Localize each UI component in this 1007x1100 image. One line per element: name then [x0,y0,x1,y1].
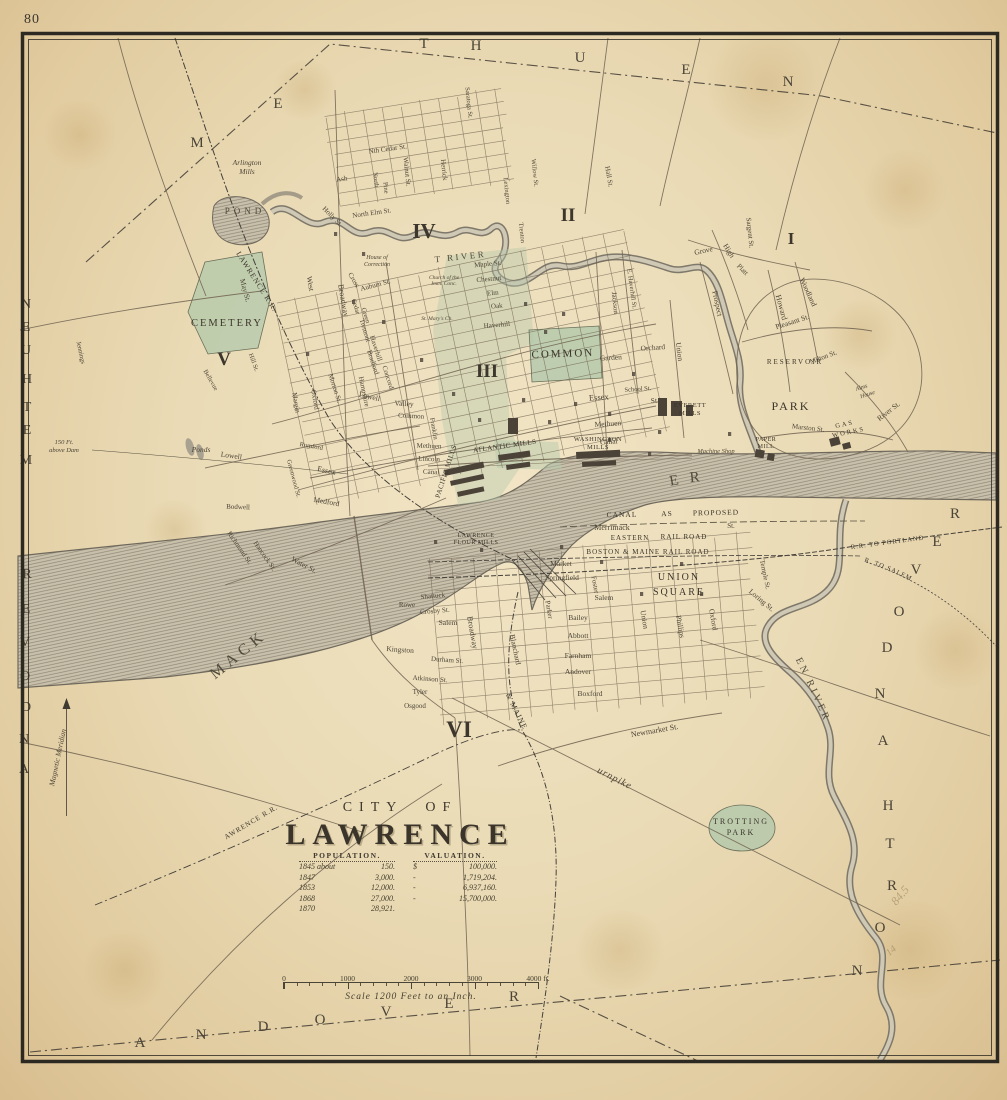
map-label: Hall St. [603,165,615,188]
map-label: Durham St. [431,655,464,665]
map-label: H [883,798,894,814]
map-label: Lincoln [418,455,441,464]
map-label: RAIL ROAD [661,533,708,541]
map-label: St. Mary's Ch. [421,316,452,322]
population-row-value: 12,000. [371,883,395,894]
map-label: PARK [772,399,811,413]
building-speck [658,430,661,434]
street-line [335,128,503,155]
population-row-label: 1853 [299,883,315,894]
valuation-row: -1,719,204. [413,873,497,884]
scale-minor-tick [386,983,387,986]
map-label: Milton St. [809,348,839,365]
valuation-row-value: 100,000. [469,862,497,873]
map-label: Rowe [399,601,415,609]
map-label: Willow St. [530,159,540,188]
scale-tick-label: 0 [282,974,286,983]
valuation-rows: $100,000.-1,719,204.-6,937,160.-15,700,0… [413,862,497,904]
map-label: N [875,686,886,702]
pond-outlet [262,193,302,204]
map-label: II [561,205,576,226]
scale-minor-tick [360,983,361,986]
map-label: Methuen [416,442,442,451]
building-speck [434,540,437,544]
scale-tick [475,983,476,989]
map-label: CANAL [606,510,637,520]
map-label: Boxford [578,689,603,698]
compass-arrowhead-icon [63,698,71,709]
map-label: Foster [590,575,601,594]
valuation-row-label: - [413,894,416,905]
map-label: Grove [693,244,714,257]
map-label: Blanchard [508,633,523,665]
population-row-value: 150. [381,862,395,873]
map-label: 150 Ft. [55,439,74,446]
map-label: N [196,1027,207,1043]
map-label: Platt [735,262,750,277]
population-row: 185312,000. [299,883,395,894]
population-row-value: 27,000. [371,894,395,905]
map-label: Ash [336,174,349,184]
map-label: Concord [380,365,395,391]
map-label: AS [661,509,673,518]
cemetery-area [188,252,270,354]
map-label: O [894,604,905,620]
map-label: D [882,640,893,656]
population-table: POPULATION. 1845 about150.18473,000.1853… [299,851,395,915]
map-label: Valley [394,399,414,409]
map-label: Tyler [413,688,428,696]
building-speck [480,548,483,552]
page-number: 80 [24,12,40,28]
street-line [337,153,508,180]
scale-minor-tick [424,983,425,986]
map-label: POND [225,206,266,216]
scale-tick [411,983,412,989]
building-speck [728,432,731,436]
street-line [325,89,502,117]
building-speck [524,302,527,306]
map-label: A [135,1035,146,1051]
population-row: 1845 about150. [299,862,395,873]
map-label: River St. [875,399,902,423]
scale-minor-tick [373,983,374,986]
pond [213,197,270,245]
map-label: MILLS [679,410,701,417]
valuation-row: -6,937,160. [413,883,497,894]
map-label: UNION [658,572,700,583]
map-label: West [305,275,317,292]
building-speck [648,452,651,456]
map-label: Ponds [191,445,211,454]
population-row: 186827,000. [299,894,395,905]
map-label: Machine Shop [696,448,735,455]
street-line [603,234,646,437]
map-label: Springfield [545,573,579,582]
map-label: Temple St. [758,559,772,590]
street-line [339,166,511,193]
population-header: POPULATION. [299,851,395,862]
building-speck [362,252,365,256]
map-label: Kingston [386,644,414,655]
scale-minor-tick [398,983,399,986]
map-label: PARK [727,828,756,837]
valuation-row: -15,700,000. [413,894,497,905]
map-label: above Dam [49,447,79,454]
population-row-label: 1868 [299,894,315,905]
map-label: Market [550,559,573,568]
population-row: 187028,921. [299,904,395,915]
scale-ruler: 01000200030004000 ft. [283,982,539,989]
map-label: Margin [290,392,302,414]
valuation-row-value: 15,700,000. [459,894,497,905]
building-speck [632,372,635,376]
valuation-row-value: 6,937,160. [463,883,497,894]
map-label: Union [638,610,650,630]
map-label: E [681,62,690,78]
street-line [326,101,504,129]
map-title-prefix: CITY OF [285,800,515,816]
map-label: Elm [487,288,500,297]
map-label-curved: LOWELL AND LAWRENCE R.R. [0,0,279,841]
map-label: FLOUR MILLS [454,540,499,546]
map-label: EVERETT [674,402,706,409]
map-label: Sargent St. [744,217,755,249]
map-label: PROPOSED [693,508,740,518]
map-label: IV [412,219,435,243]
map-label: V [381,1004,392,1020]
map-label: Farnham [565,651,592,660]
building-speck [608,412,611,416]
map-label: D [258,1019,269,1035]
map-label: Herrick [439,159,449,182]
map-label: COMMON [531,347,594,361]
map-label: School St. [624,385,652,394]
map-label: Oak [491,301,504,310]
map-label: Lexington [502,177,512,205]
map-label: Trenton [517,222,526,244]
scale-tick-label: 2000 [404,974,419,983]
map-label: Rumford [299,441,324,452]
map-label: North [371,172,380,189]
map-label: N [783,74,794,90]
map-label: Walnut St. [401,157,412,187]
scale-tick-label: 4000 ft. [526,974,549,983]
building-speck [640,592,643,596]
scale-tick [348,983,349,989]
population-row: 18473,000. [299,873,395,884]
map-label: E. Haverhill St. [625,268,638,309]
building-speck [306,352,309,356]
population-rows: 1845 about150.18473,000.185312,000.18682… [299,862,395,915]
map-label: Merrimack [594,523,630,532]
map-label: Phillips [674,614,687,638]
map-label: Lowell [220,450,242,462]
map-label: Abbott [568,631,590,640]
building-speck [560,545,563,549]
map-label: T [885,836,894,852]
valuation-row-label: - [413,873,416,884]
map-label: St. [650,396,659,406]
map-label: E [932,534,941,550]
building-speck [544,330,547,334]
map-label: O [875,920,886,936]
scale-minor-tick [513,983,514,986]
map-label: Mills [238,167,254,176]
map-label: Oxford [707,608,720,631]
scale-bar: 01000200030004000 ft. Scale 1200 Feet to… [283,972,539,1002]
map-label: EASTERN [611,534,650,542]
street-line [336,140,506,167]
map-label: Atkinson St. [412,674,448,684]
map-label: St. [727,522,735,530]
street-line [340,179,514,207]
building-speck [562,312,565,316]
map-label: TROTTING [713,817,769,826]
map-label: VI [446,717,472,742]
map-canvas: METHUENNEUHTEMREVODNAANDOVERREVODNAHTRON… [0,0,1007,1100]
map-label: E [273,96,282,112]
map-label: Church of the [429,274,460,281]
map-label: 14 [884,944,899,959]
valuation-header: VALUATION. [413,851,497,862]
map-label: V [911,562,922,578]
map-label: Bailey [568,613,588,622]
map-label: Salem [439,618,458,627]
valuation-row-label: $ [413,862,417,873]
map-label: Broadway [465,616,480,650]
map-label: Canal [600,436,618,446]
valuation-row: $100,000. [413,862,497,873]
scale-minor-tick [335,983,336,986]
map-label: Salem [595,593,614,602]
scale-tick [284,983,285,989]
building-speck [600,560,603,564]
street-line [327,114,506,142]
map-label: Marston St. [792,422,826,433]
street-line [439,656,761,684]
street-line [693,538,707,700]
map-label: CEMETERY [191,318,263,329]
map-label: PAPER [756,437,777,443]
map-label: O [315,1012,326,1028]
building-speck [382,320,385,324]
map-label: Arlington [232,158,262,167]
map-label: Medford [313,495,341,508]
map-label: Hill St. [247,352,260,372]
map-label: Magnetic Meridian [47,728,68,788]
map-label: Osgood [404,702,426,710]
map-label: Andover [565,667,592,676]
street-line [648,539,663,707]
map-label: Imm. Conc. [430,281,457,287]
valuation-row-value: 1,719,204. [463,873,497,884]
population-row-value: 28,921. [371,904,395,915]
map-title: LAWRENCE [285,818,515,852]
street-line [437,610,754,638]
map-label: Jennings [75,341,87,365]
map-label: Correction [364,262,390,268]
scale-minor-tick [436,983,437,986]
scale-minor-tick [297,983,298,986]
building-speck [680,562,683,566]
valuation-row-label: - [413,883,416,894]
building-speck [478,418,481,422]
scale-tick-label: 1000 [340,974,355,983]
scale-caption: Scale 1200 Feet to an Inch. [283,992,539,1002]
map-label: BOSTON & MAINE RAIL ROAD [586,548,709,556]
map-label: Essex [316,464,336,477]
scale-minor-tick [309,983,310,986]
map-label: U [575,50,586,66]
map-label: H [471,38,482,54]
map-label: A [878,733,889,749]
scale-minor-tick [462,983,463,986]
scale-minor-tick [449,983,450,986]
map-label: Auburn St. [360,277,392,293]
street-line [438,625,757,653]
valuation-table: VALUATION. $100,000.-1,719,204.-6,937,16… [413,851,497,904]
map-label: Garden [599,352,622,363]
map-label: Canal [423,468,440,477]
map-label: Pine [381,182,389,194]
map-label: Nth Cedar St. [368,142,407,155]
map-label: Union [674,342,686,362]
map-label: Bodwell [226,503,250,512]
map-label: Woodland [798,276,819,308]
scale-tick-label: 3000 [467,974,482,983]
map-label: M [190,135,203,151]
map-label: R [950,506,960,522]
map-label: Bellevue [201,368,219,392]
population-row-label: 1845 about [299,862,335,873]
map-label: Oxford [309,389,320,411]
map-label: Jackson [610,291,620,314]
map-label: N [852,963,863,979]
map-label: Greenwood St. [285,459,302,499]
street-line [438,640,758,668]
map-label: MILL [758,444,775,450]
map-label: Methuen [594,418,621,429]
population-row-value: 3,000. [375,873,395,884]
scale-minor-tick [500,983,501,986]
map-label: Crosby St. [420,606,450,617]
scale-minor-tick [322,983,323,986]
map-label: Saratoga St. [463,87,473,119]
building-speck [334,232,337,236]
scale-tick [538,983,539,989]
map-label: Orchard [640,342,665,353]
scale-minor-tick [525,983,526,986]
map-label: V [217,349,231,370]
building-speck [420,358,423,362]
map-label: SQUARE [653,587,705,598]
eastern-rr-salem [866,562,996,646]
building-speck [522,398,525,402]
map-label: I [788,229,795,248]
map-label: III [476,361,498,382]
map-label: T [419,36,428,52]
map-label: LAWRENCE [458,533,495,539]
title-block: CITY OF LAWRENCE [285,800,515,852]
building-speck [548,420,551,424]
population-row-label: 1870 [299,904,315,915]
scale-minor-tick [487,983,488,986]
map-label: Essex [589,391,610,402]
map-label: Loring St. [747,587,776,614]
map-label: House of [365,254,389,261]
map-sheet: { "page_number": "80", "colors": { "pape… [0,0,1007,1100]
map-label: North Elm St. [352,206,392,219]
population-row-label: 1847 [299,873,315,884]
building-speck [452,392,455,396]
map-label: Common [398,411,425,420]
building-speck [574,402,577,406]
